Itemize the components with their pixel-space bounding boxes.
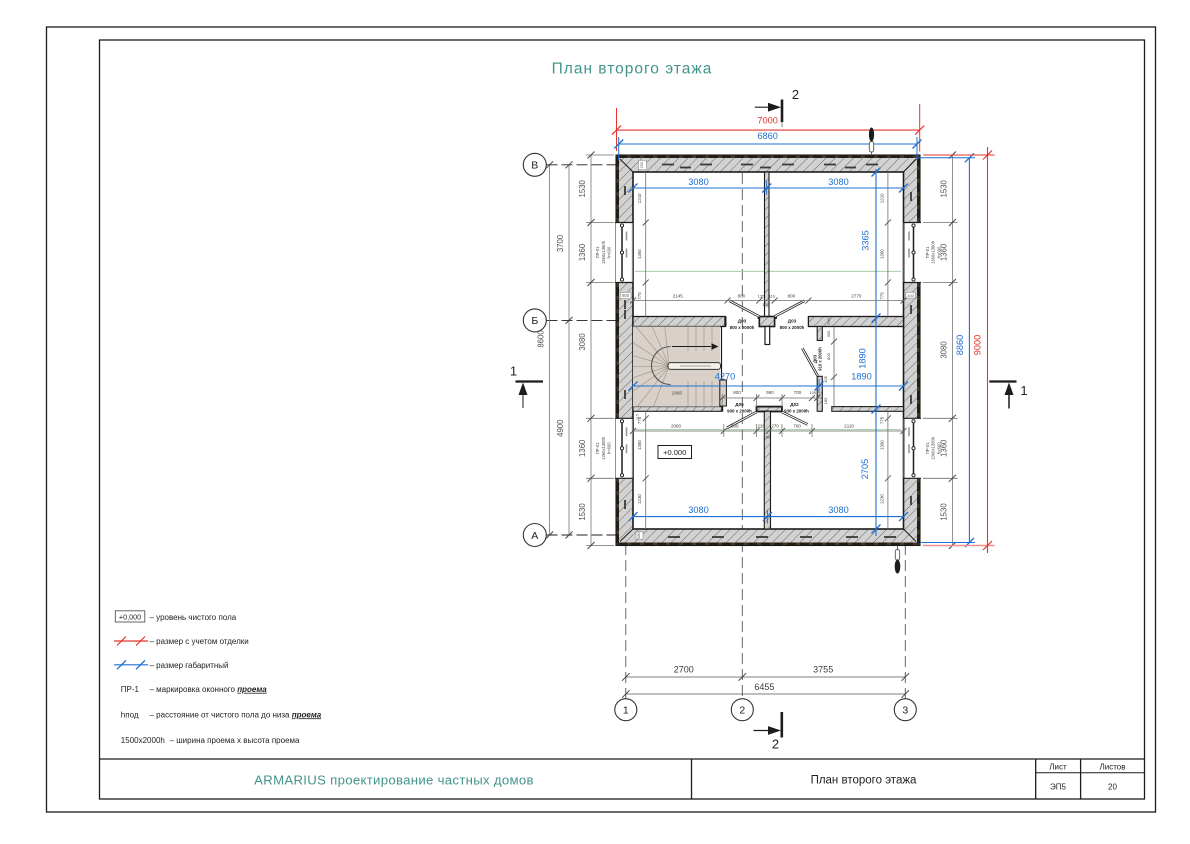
svg-text:2060: 2060 (671, 423, 682, 428)
svg-text:2705: 2705 (860, 459, 870, 479)
svg-text:ПР-01: ПР-01 (925, 442, 930, 455)
svg-text:h=600: h=600 (607, 442, 612, 454)
svg-text:3: 3 (902, 705, 908, 717)
svg-text:220: 220 (757, 423, 765, 428)
svg-text:2110: 2110 (844, 423, 854, 428)
svg-text:Д02: Д02 (790, 402, 799, 407)
svg-text:800: 800 (826, 352, 831, 359)
svg-text:3080: 3080 (828, 505, 848, 515)
svg-text:930 х 2000h: 930 х 2000h (784, 408, 809, 413)
svg-text:800: 800 (738, 294, 746, 299)
svg-text:775: 775 (879, 416, 884, 424)
svg-text:900 х 2000h: 900 х 2000h (727, 408, 752, 413)
svg-text:1890: 1890 (851, 372, 871, 382)
svg-text:800: 800 (788, 294, 796, 299)
svg-text:1530: 1530 (940, 503, 949, 521)
svg-text:ПР-1: ПР-1 (121, 685, 140, 694)
svg-text:Д03: Д03 (788, 319, 797, 324)
svg-text:ЭП5: ЭП5 (1050, 783, 1067, 792)
svg-text:775: 775 (879, 292, 884, 300)
svg-text:1530: 1530 (578, 179, 587, 197)
svg-text:– ширина проема х высота прое: – ширина проема х высота проема (170, 736, 300, 745)
svg-text:700: 700 (793, 423, 801, 428)
svg-text:1360: 1360 (637, 249, 642, 259)
svg-text:150: 150 (763, 435, 770, 440)
svg-text:1360х1380h: 1360х1380h (601, 436, 606, 460)
svg-text:100: 100 (809, 390, 816, 395)
svg-text:1360: 1360 (578, 243, 587, 261)
svg-text:Б: Б (531, 315, 538, 327)
svg-text:800: 800 (733, 390, 741, 395)
svg-text:1: 1 (510, 364, 517, 379)
svg-text:800 х 2000h: 800 х 2000h (780, 325, 805, 330)
svg-text:1500х2000h: 1500х2000h (121, 736, 165, 745)
svg-text:3755: 3755 (813, 664, 833, 674)
svg-text:2770: 2770 (851, 294, 862, 299)
svg-text:8600: 8600 (536, 330, 545, 348)
svg-text:1530: 1530 (578, 503, 587, 521)
svg-text:3080: 3080 (688, 177, 708, 187)
svg-text:– размер с учетом отделки: – размер с учетом отделки (150, 637, 249, 646)
svg-text:9000: 9000 (973, 335, 983, 355)
svg-text:2: 2 (792, 87, 799, 102)
svg-text:135: 135 (758, 294, 765, 299)
svg-text:План второго этажа: План второго этажа (552, 61, 713, 78)
svg-text:7000: 7000 (757, 115, 777, 125)
svg-text:Лист: Лист (1049, 763, 1067, 772)
svg-text:3080: 3080 (940, 341, 949, 359)
svg-text:270: 270 (771, 423, 779, 428)
svg-text:В: В (531, 160, 538, 172)
svg-text:+0.000: +0.000 (663, 448, 686, 457)
svg-text:3080: 3080 (688, 505, 708, 515)
svg-text:1530: 1530 (940, 179, 949, 197)
svg-text:1360х1380h: 1360х1380h (601, 240, 606, 264)
svg-text:3080: 3080 (828, 177, 848, 187)
svg-text:ПР-01: ПР-01 (595, 442, 600, 455)
svg-text:ПР-01: ПР-01 (595, 246, 600, 259)
svg-text:Д05: Д05 (735, 402, 744, 407)
svg-text:180: 180 (823, 397, 828, 404)
svg-text:Листов: Листов (1100, 763, 1126, 772)
svg-text:h=600: h=600 (936, 442, 941, 454)
svg-text:А: А (531, 530, 538, 542)
svg-text:775: 775 (637, 292, 642, 300)
svg-text:100: 100 (907, 293, 914, 298)
svg-text:– маркировка оконного проема: – маркировка оконного проема (150, 685, 268, 694)
svg-text:– размер габаритный: – размер габаритный (150, 661, 229, 670)
svg-text:ARMARIUS проектирование частны: ARMARIUS проектирование частных домов (254, 773, 534, 788)
svg-text:План второго этажа: План второго этажа (811, 775, 917, 787)
svg-text:h=600: h=600 (936, 246, 941, 258)
svg-text:4900: 4900 (556, 419, 565, 437)
svg-text:1210: 1210 (637, 193, 642, 203)
svg-text:1360х1380h: 1360х1380h (931, 436, 936, 460)
svg-text:4270: 4270 (715, 372, 735, 382)
svg-text:2700: 2700 (674, 664, 694, 674)
svg-text:110: 110 (769, 294, 776, 299)
svg-text:230: 230 (826, 317, 831, 324)
svg-text:ПР-01: ПР-01 (925, 246, 930, 259)
svg-text:h=600: h=600 (607, 246, 612, 258)
svg-text:6860: 6860 (757, 131, 777, 141)
svg-text:2145: 2145 (673, 294, 684, 299)
svg-text:305: 305 (826, 330, 831, 337)
svg-text:1360х1380h: 1360х1380h (931, 240, 936, 264)
svg-text:3365: 3365 (861, 230, 871, 250)
svg-text:105: 105 (823, 375, 828, 382)
svg-text:1: 1 (1020, 383, 1027, 398)
svg-text:775: 775 (637, 416, 642, 424)
svg-text:hпод: hпод (121, 710, 139, 719)
svg-text:800: 800 (731, 423, 739, 428)
svg-text:2: 2 (772, 737, 779, 752)
svg-text:880: 880 (637, 532, 641, 538)
svg-text:1210: 1210 (879, 193, 884, 203)
svg-text:1360: 1360 (637, 440, 642, 450)
svg-text:1360: 1360 (879, 249, 884, 259)
svg-text:1890: 1890 (858, 348, 868, 368)
svg-text:250: 250 (639, 161, 644, 168)
svg-text:1230: 1230 (637, 494, 642, 504)
svg-text:1360: 1360 (578, 439, 587, 457)
svg-text:700: 700 (794, 390, 802, 395)
svg-text:1360: 1360 (879, 440, 884, 450)
svg-text:– уровень чистого пола: – уровень чистого пола (150, 613, 237, 622)
svg-text:910 х 2000h: 910 х 2000h (818, 347, 823, 371)
svg-text:1: 1 (623, 705, 629, 717)
svg-text:590: 590 (766, 390, 774, 395)
svg-text:100: 100 (762, 302, 769, 307)
svg-text:2: 2 (739, 705, 745, 717)
svg-text:+0,000: +0,000 (119, 612, 141, 621)
svg-text:600: 600 (622, 293, 630, 298)
svg-text:20: 20 (1108, 783, 1117, 792)
svg-text:2060: 2060 (672, 391, 683, 396)
svg-text:800 х 2000h: 800 х 2000h (730, 325, 755, 330)
svg-text:– расстояние от чистого пола: – расстояние от чистого пола до низа про… (150, 710, 322, 719)
svg-text:Д03: Д03 (738, 319, 747, 324)
svg-text:8860: 8860 (955, 335, 965, 355)
svg-text:3080: 3080 (578, 333, 587, 351)
svg-text:1230: 1230 (879, 494, 884, 504)
svg-text:6455: 6455 (754, 682, 774, 692)
svg-text:3700: 3700 (556, 234, 565, 252)
